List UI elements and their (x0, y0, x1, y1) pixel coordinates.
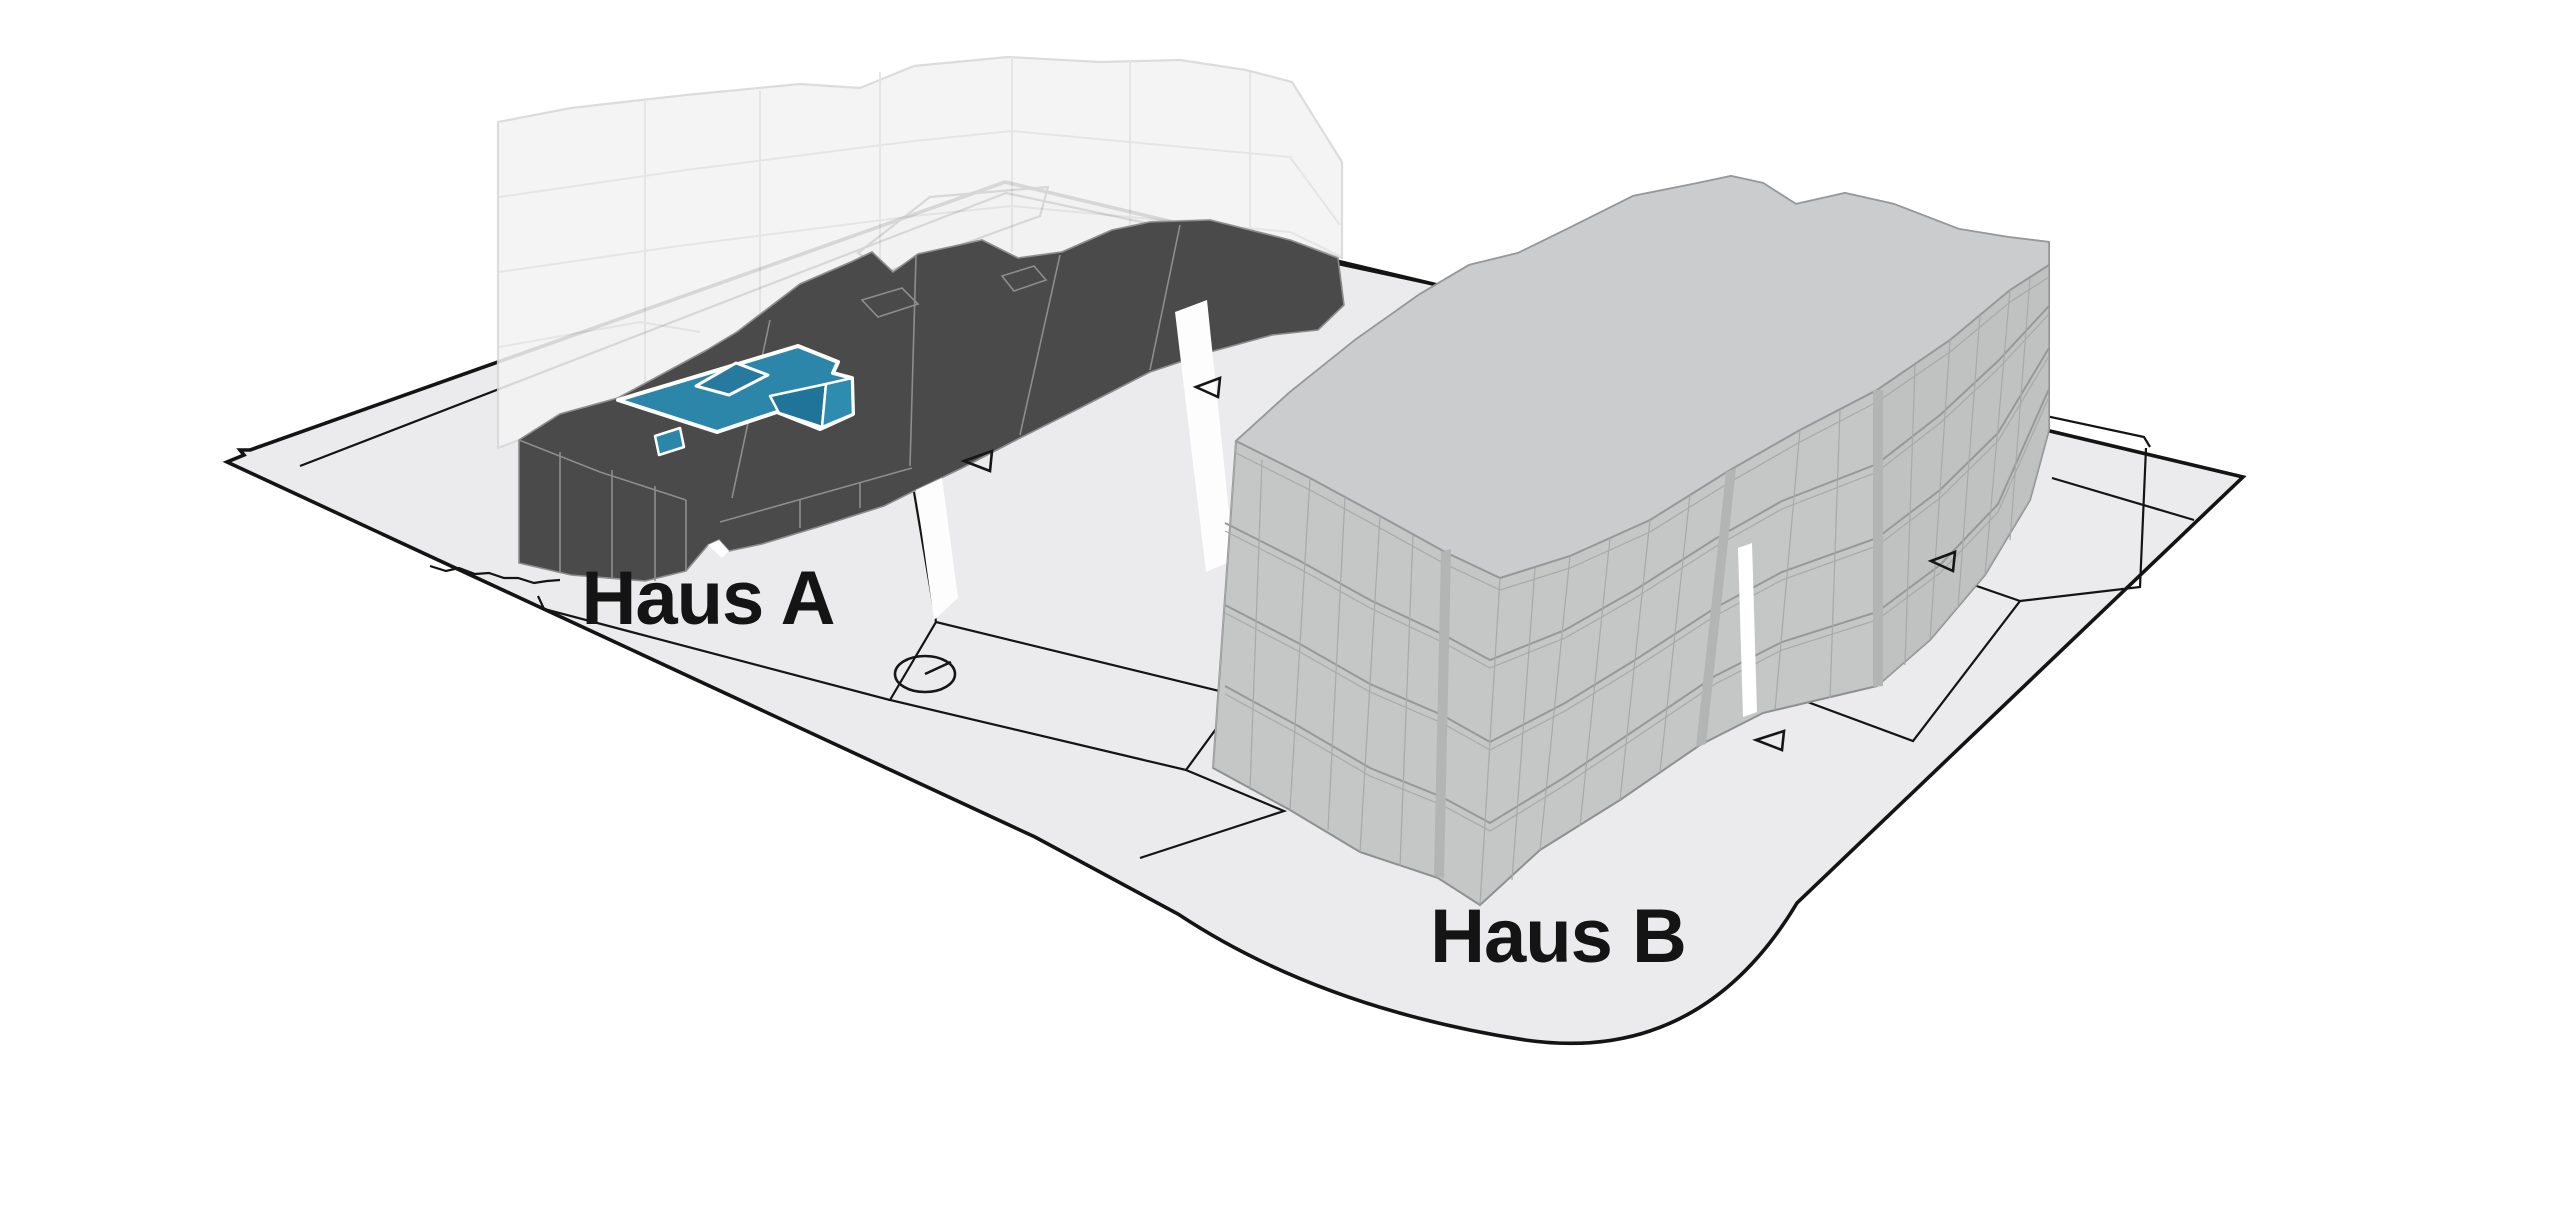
building-b-label[interactable]: Haus B (1430, 894, 1686, 979)
building-a-label[interactable]: Haus A (581, 556, 834, 641)
site-plan-canvas: Haus A Haus B (0, 0, 2560, 1227)
site-plan-svg: Haus A Haus B (0, 0, 2560, 1227)
